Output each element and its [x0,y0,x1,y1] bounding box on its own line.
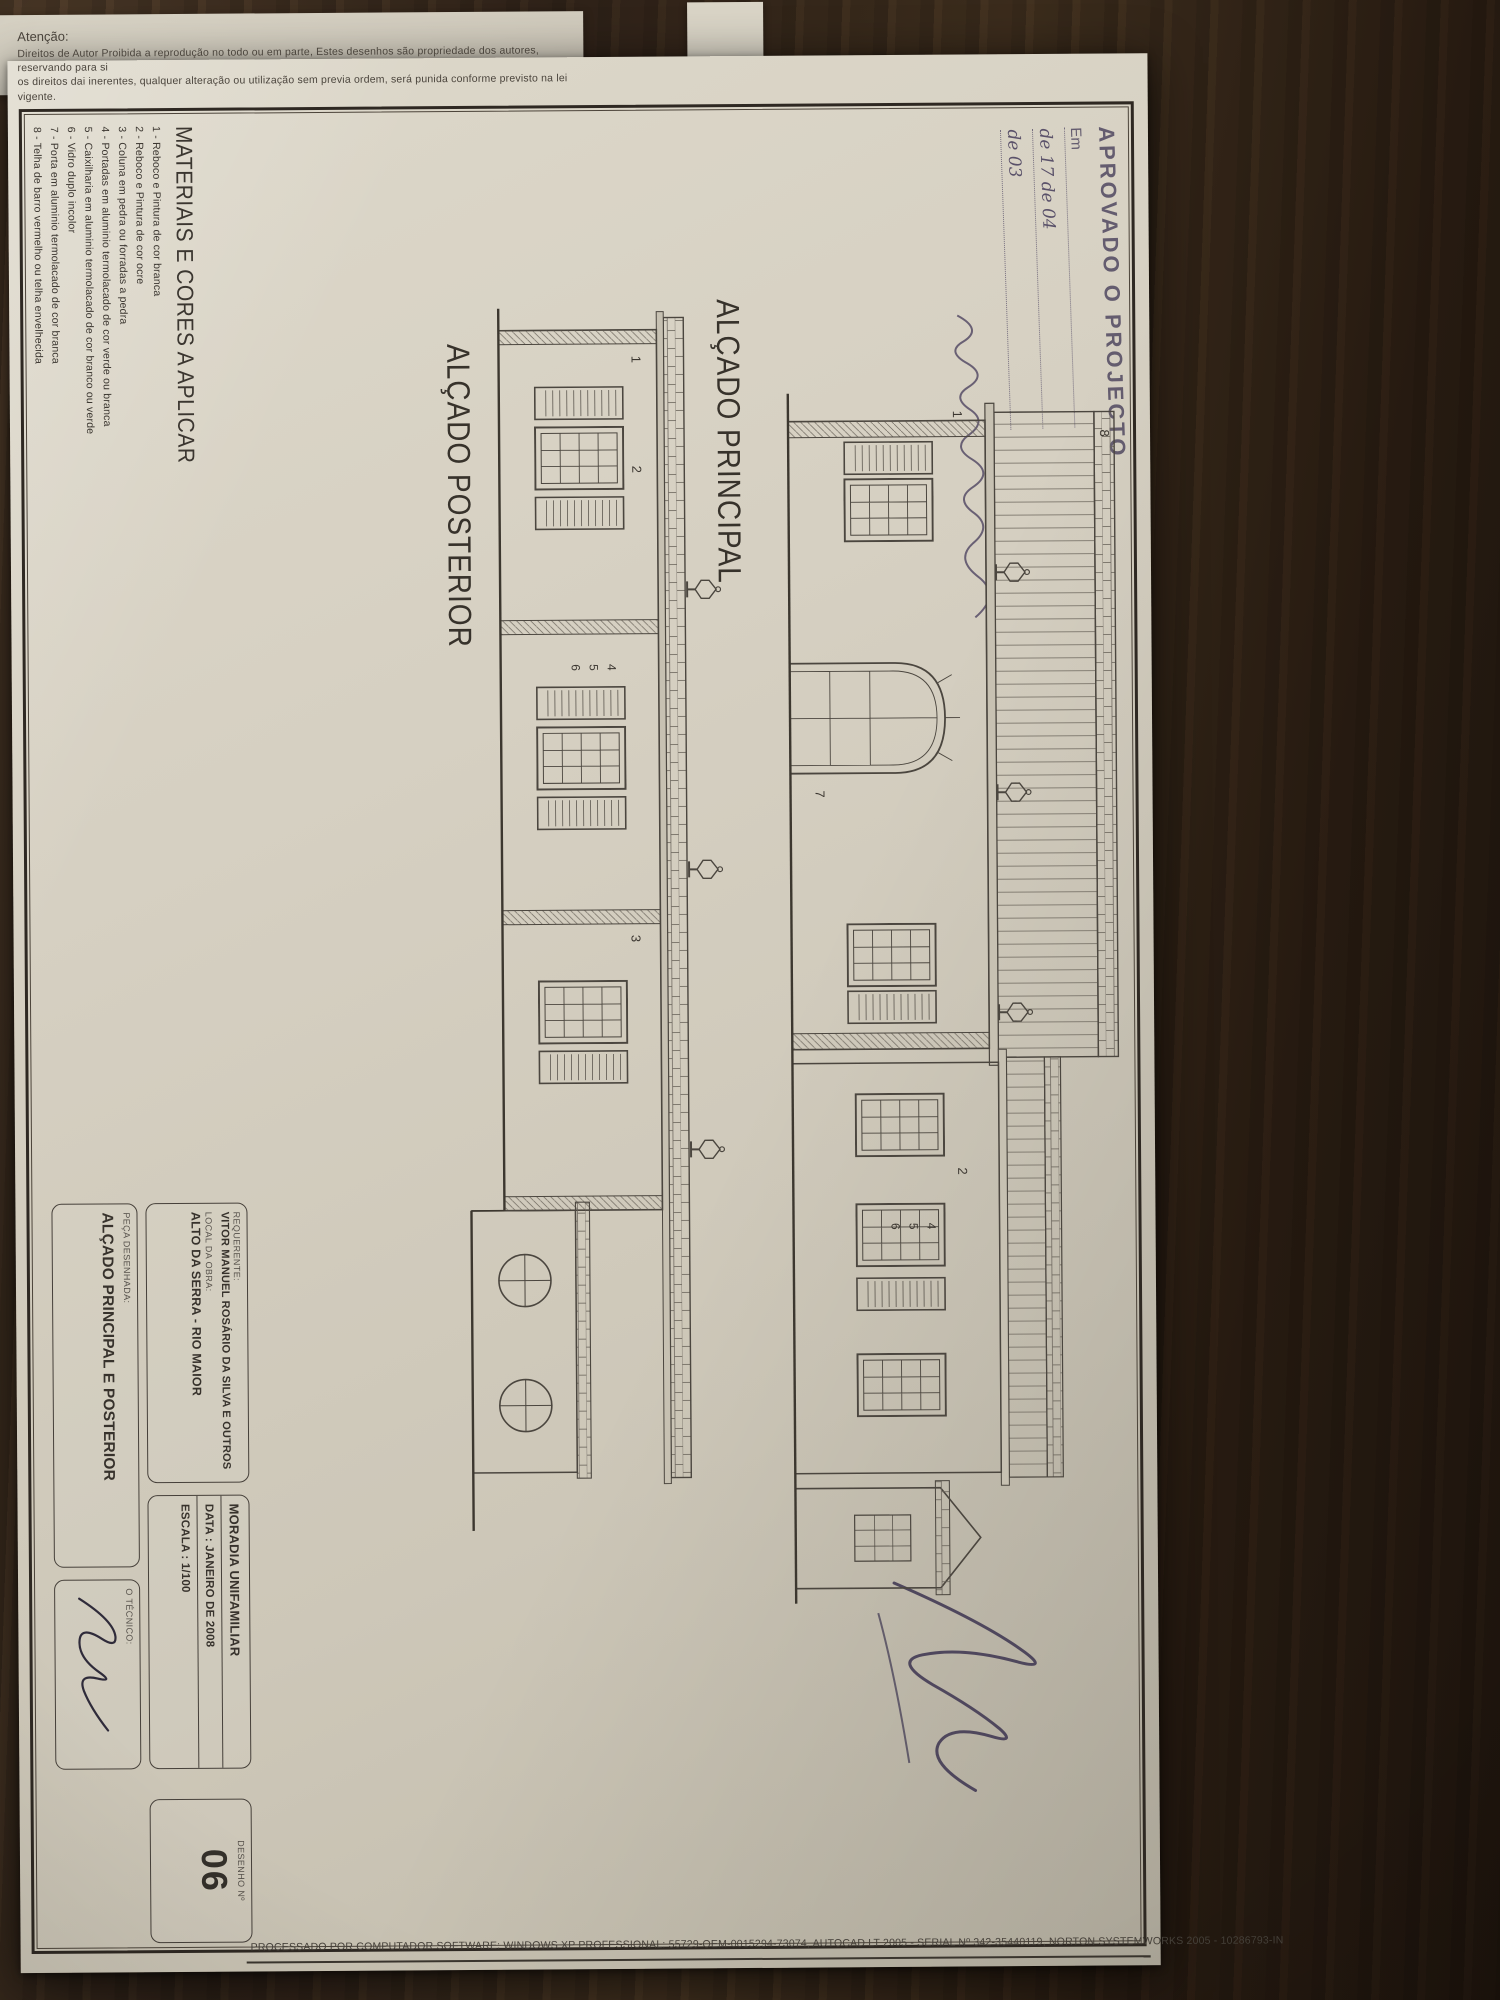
material-ref-number: 6 [889,1223,903,1230]
copyright-line-1: Direitos de Autor Proibida a reprodução … [17,43,577,75]
title-block-requerente-box: REQUERENTE: VITOR MANUEL ROSÁRIO DA SILV… [145,1203,249,1484]
title-block-divider: ESCALA : 1/100 [178,1496,199,1768]
desenho-numero-value: 06 [193,1800,236,1942]
tecnico-label: O TÉCNICO: [124,1588,135,1760]
requerente-value: VITOR MANUEL ROSÁRIO DA SILVA E OUTROS [218,1212,232,1474]
drawing-sheet-wrap: Atenção: Direitos de Autor Proibida a re… [0,0,1500,2000]
project-type-value: MORADIA UNIFAMILIAR [227,1504,244,1760]
materials-list: 1 - Reboco e Pintura de cor branca 2 - R… [28,126,167,557]
material-ref-number: 6 [569,664,583,671]
materials-item: 7 - Porta em aluminio termolacado de cor… [45,127,65,557]
copyright-title: Atenção: [17,25,577,44]
material-ref-number: 2 [955,1167,970,1174]
local-obra-label: LOCAL DA OBRA: [203,1212,215,1474]
material-ref-number: 7 [813,790,828,797]
requerente-label: REQUERENTE: [231,1212,243,1474]
materials-item: 6 - Vidro duplo incolor [62,127,82,557]
material-ref-number: 5 [907,1223,921,1230]
tecnico-signature [67,1588,124,1758]
project-scale-value: ESCALA : 1/100 [179,1504,193,1760]
elevation-posterior-label: ALÇADO POSTERIOR [439,344,478,648]
materials-item: 2 - Reboco e Pintura de cor ocre [130,126,150,556]
title-block-tecnico-box: O TÉCNICO: [54,1579,141,1770]
elevation-principal-drawing: 8 1 7 2 4 5 6 [767,261,1126,1608]
title-block-peca-box: PEÇA DESENHADA: ALÇADO PRINCIPAL E POSTE… [51,1203,140,1568]
materials-legend: MATERIAIS E CORES A APLICAR 1 - Reboco e… [28,126,199,557]
title-block: REQUERENTE: VITOR MANUEL ROSÁRIO DA SILV… [48,1202,258,1945]
photo-of-architectural-drawing: Atenção: Direitos de Autor Proibida a re… [0,0,1500,2000]
material-ref-number: 8 [1097,429,1112,436]
paper-tab [687,2,763,61]
materials-item: 4 - Portadas em aluminio termolacado de … [96,126,116,556]
material-ref-number: 3 [629,935,644,942]
materials-item: 5 - Caixilharia em aluminio termolacado … [79,127,99,557]
title-block-desenho-box: DESENHO Nº 06 [150,1798,253,1943]
materials-item: 1 - Reboco e Pintura de cor branca [147,126,167,556]
peca-desenhada-label: PEÇA DESENHADA: [121,1212,133,1558]
project-date-value: DATA : JANEIRO DE 2008 [203,1504,217,1760]
material-ref-number: 2 [629,466,644,473]
local-obra-value: ALTO DA SERRA - RIO MAIOR [188,1212,204,1474]
copyright-line-2: os direitos dai inerentes, qualquer alte… [18,72,578,104]
title-block-divider: DATA : JANEIRO DE 2008 [202,1496,223,1768]
material-ref-number: 4 [605,664,619,671]
desenho-numero-label: DESENHO Nº [236,1808,247,1934]
title-block-project-box: MORADIA UNIFAMILIAR DATA : JANEIRO DE 20… [147,1495,251,1770]
materials-item: 8 - Telha de barro vermelho ou telha env… [28,127,48,557]
copyright-notice: Atenção: Direitos de Autor Proibida a re… [17,25,578,104]
materials-item: 3 - Coluna em pedra ou forradas a pedra [113,126,133,556]
stamp-em-label: Em [1067,127,1085,150]
materials-legend-title: MATERIAIS E CORES A APLICAR [169,126,198,556]
material-ref-number: 5 [587,664,601,671]
material-ref-number: 1 [950,410,965,417]
peca-desenhada-value: ALÇADO PRINCIPAL E POSTERIOR [97,1212,117,1558]
material-ref-number: 4 [925,1223,939,1230]
rotated-sheet-content: APROVADO O PROJECTO Em de 17 de 04 de 03 [19,101,1147,1954]
material-ref-number: 1 [628,356,643,363]
